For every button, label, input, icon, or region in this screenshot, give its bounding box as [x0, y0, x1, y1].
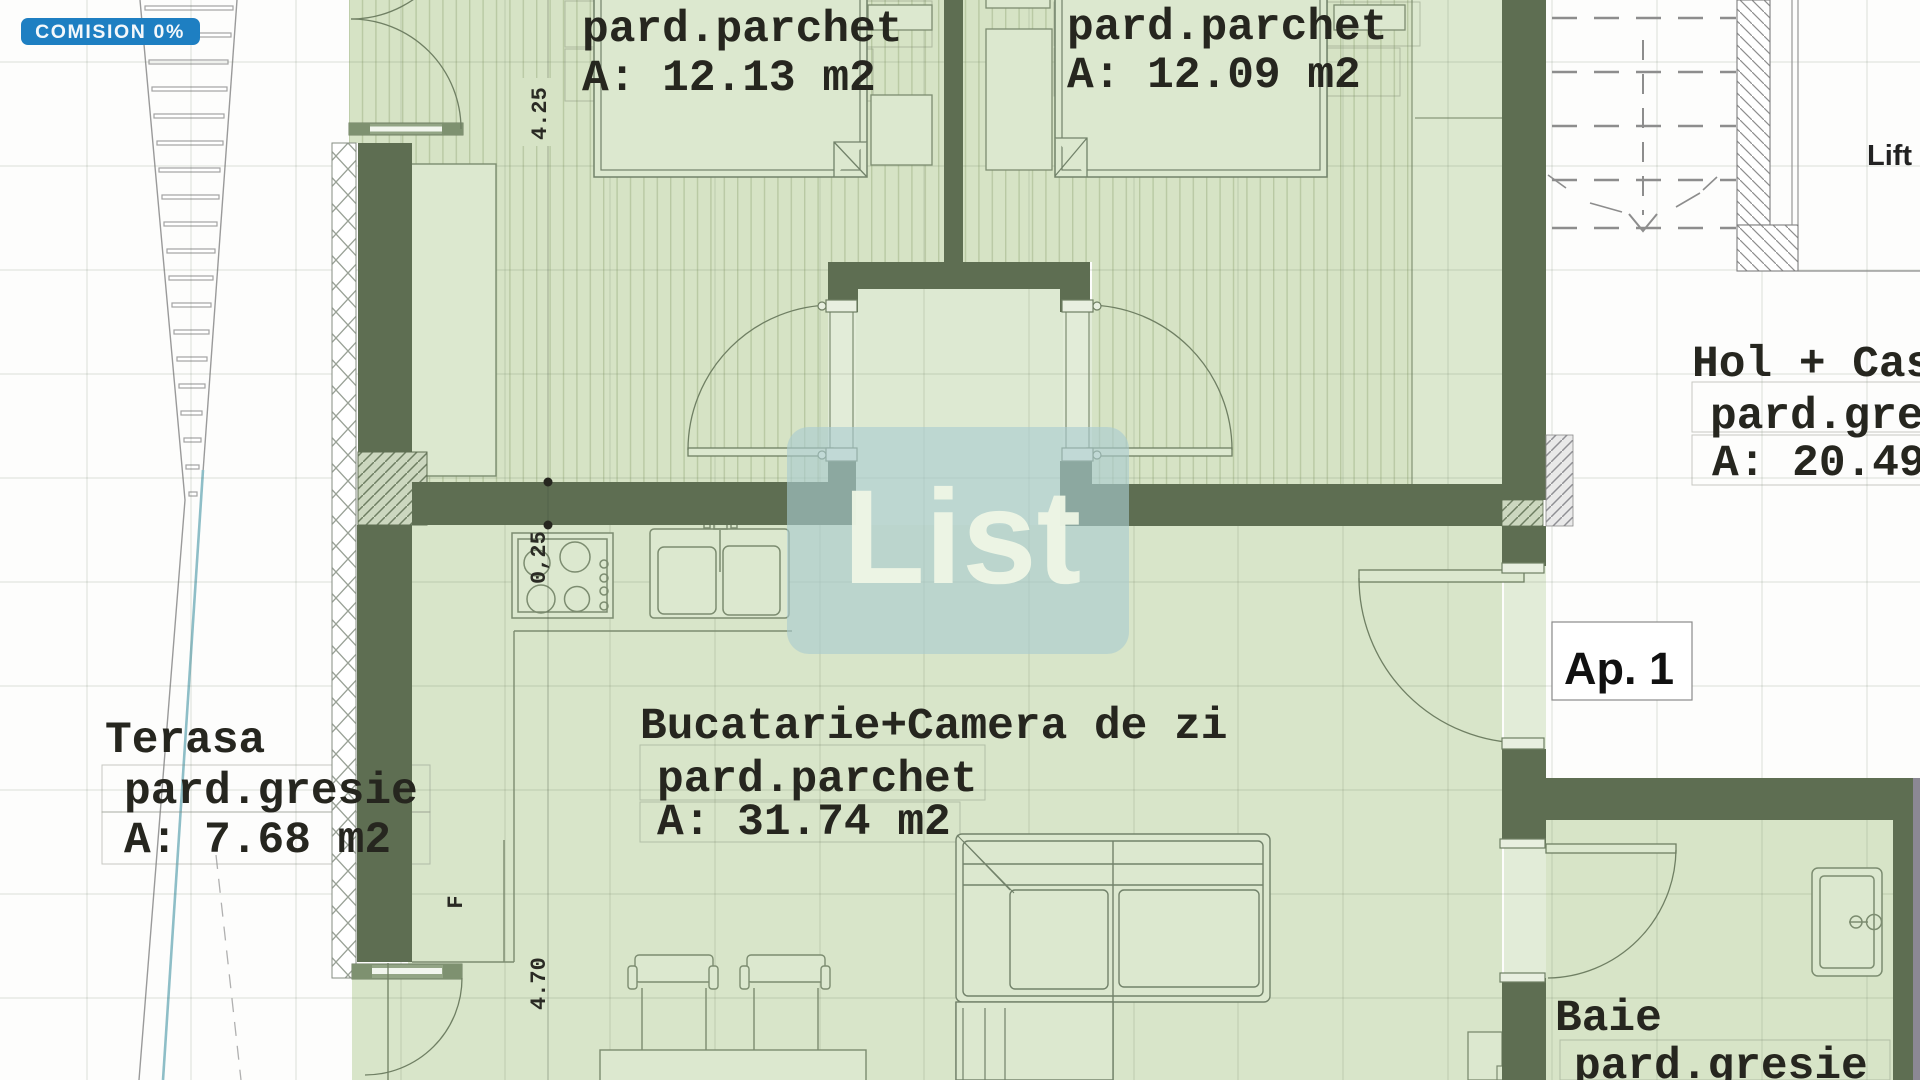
svg-text:Terasa: Terasa — [105, 716, 265, 766]
svg-text:A: 20.49: A: 20.49 — [1712, 439, 1920, 489]
svg-text:Bucatarie+Camera de zi: Bucatarie+Camera de zi — [640, 702, 1228, 752]
svg-text:pard.parchet: pard.parchet — [1067, 3, 1387, 53]
svg-text:pard.gresie: pard.gresie — [1574, 1042, 1868, 1080]
svg-text:Baie: Baie — [1555, 994, 1662, 1044]
svg-text:0,25: 0,25 — [527, 531, 552, 584]
svg-text:Lift: Lift — [1867, 140, 1912, 172]
svg-text:pard.gre: pard.gre — [1710, 392, 1920, 442]
svg-text:List: List — [843, 463, 1081, 612]
svg-text:Ap. 1: Ap. 1 — [1564, 643, 1674, 694]
svg-text:A: 12.09 m2: A: 12.09 m2 — [1067, 51, 1361, 101]
svg-text:F: F — [444, 895, 469, 908]
svg-text:pard.gresie: pard.gresie — [124, 767, 418, 817]
svg-text:4.25: 4.25 — [528, 87, 553, 140]
svg-text:A: 7.68 m2: A: 7.68 m2 — [124, 816, 391, 866]
svg-text:Hol + Cas: Hol + Cas — [1692, 340, 1920, 390]
svg-text:4.70: 4.70 — [527, 957, 552, 1010]
svg-text:A: 12.13 m2: A: 12.13 m2 — [582, 54, 876, 104]
svg-text:COMISION 0%: COMISION 0% — [35, 21, 185, 43]
svg-text:A: 31.74 m2: A: 31.74 m2 — [657, 798, 951, 848]
svg-text:pard.parchet: pard.parchet — [582, 5, 902, 55]
